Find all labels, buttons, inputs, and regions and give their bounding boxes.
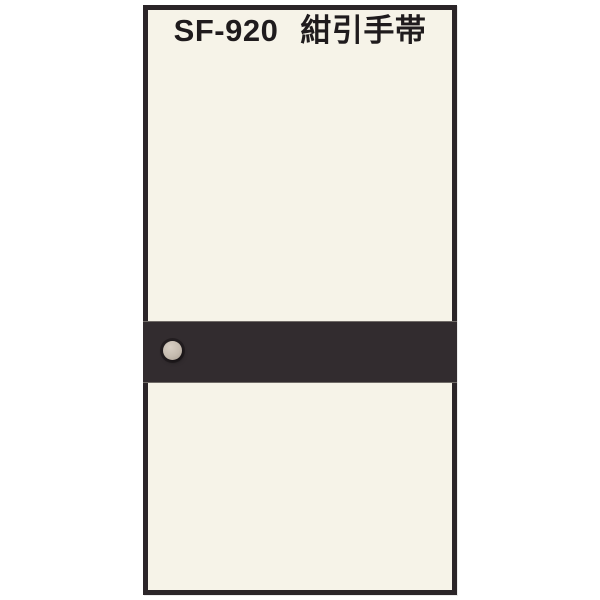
fabric-band: [143, 321, 457, 383]
product-name-label: 紺引手帯: [300, 13, 426, 48]
product-title: SF-920紺引手帯: [148, 14, 452, 48]
grommet-rivet: [163, 341, 182, 360]
product-photo: SF-920紺引手帯: [0, 0, 600, 600]
product-code-label: SF-920: [174, 13, 279, 48]
sample-card: SF-920紺引手帯: [143, 5, 457, 595]
